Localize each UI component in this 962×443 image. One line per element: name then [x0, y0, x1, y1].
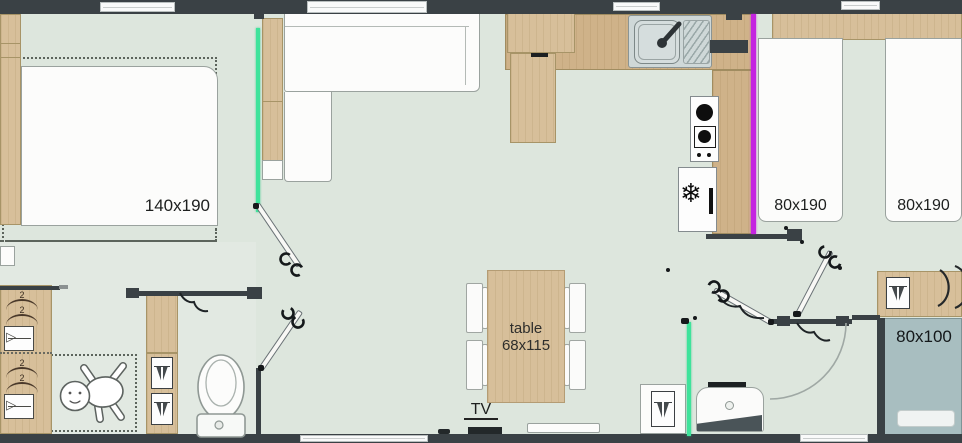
window — [100, 2, 175, 12]
bathroom-divider-dotted — [0, 240, 215, 242]
shower-west-wall — [877, 318, 885, 435]
shower-tray — [897, 410, 955, 427]
hanger-qty: 2 — [6, 291, 38, 299]
sliding-door-green-1 — [256, 28, 260, 212]
single-bed-2 — [885, 38, 962, 222]
burner-large — [696, 104, 713, 121]
towel-icon — [886, 277, 910, 309]
washbasin — [696, 387, 764, 432]
sofa — [284, 10, 480, 92]
stove-knob-2 — [707, 153, 711, 157]
bathroom-east-wall — [256, 368, 261, 434]
nightstand — [0, 246, 15, 266]
hanger-icon: 2 — [6, 306, 38, 325]
tv-label: TV — [464, 401, 498, 420]
kitchen-sink — [628, 15, 712, 68]
wardrobe-shelf-dotted — [0, 352, 52, 354]
cabinet-handle — [531, 53, 548, 57]
snowflake-icon: ❄ — [680, 180, 702, 206]
folded-linen-icon: ▷ — [4, 394, 34, 419]
living-wardrobe-column — [262, 18, 283, 162]
door-latch — [681, 318, 689, 324]
door-hinge — [253, 203, 259, 209]
fridge-handle — [709, 188, 713, 214]
door-swing-arc — [770, 323, 846, 399]
floorplan: 140x190 ❄ table — [0, 0, 962, 443]
dining-table: table 68x115 — [487, 270, 565, 403]
wardrobe-top-edge — [0, 286, 60, 290]
stove — [690, 96, 719, 162]
door-leaf — [259, 310, 303, 371]
stove-knob-1 — [697, 153, 701, 157]
hanger-qty: 2 — [6, 359, 38, 367]
window-sill-bench — [527, 423, 600, 433]
washbasin-counter — [697, 415, 762, 431]
bathroom-north-wall — [128, 291, 258, 296]
table-size-label: 68x115 — [502, 337, 550, 354]
door-jamb — [836, 316, 849, 326]
chair — [466, 283, 483, 333]
threshold-mark — [797, 323, 830, 341]
wall-dot — [838, 266, 842, 270]
sofa-chaise — [284, 92, 332, 182]
tv-unit — [468, 427, 502, 434]
door-jamb — [777, 316, 790, 326]
hanger-icon: 2 — [6, 374, 38, 393]
door-hinge — [793, 311, 801, 317]
jamb-bolt — [800, 240, 804, 244]
table-label: table — [510, 320, 543, 337]
chair — [466, 340, 483, 390]
door-leaf — [713, 287, 774, 325]
door-hinge — [258, 365, 264, 371]
bathroom-divider-dotted-v — [215, 229, 217, 241]
towel-icon — [151, 393, 173, 425]
kitchen-cabinet-lower — [510, 53, 556, 143]
chair — [569, 340, 586, 390]
window — [307, 1, 427, 13]
bedroom-hall-wall-step — [852, 315, 880, 320]
hanger-qty: 2 — [6, 374, 38, 382]
window — [800, 434, 868, 442]
bathroom-tall-cabinet — [146, 293, 178, 353]
chair — [569, 283, 586, 333]
window — [613, 2, 660, 11]
door-leaf — [255, 202, 302, 267]
single-bed-1 — [758, 38, 843, 222]
wall-nub — [254, 13, 264, 19]
door-jamb — [247, 287, 262, 299]
wardrobe-handle — [59, 285, 68, 289]
wall-dot — [666, 268, 670, 272]
towel-icon — [151, 357, 173, 389]
wall-nub — [726, 13, 742, 20]
washbasin-drain — [725, 401, 734, 410]
single-bed-1-size-label: 80x190 — [758, 197, 843, 215]
fridge: ❄ — [678, 167, 717, 232]
shower-size-label: 80x100 — [888, 327, 960, 347]
sink-drainer — [683, 20, 710, 64]
window — [300, 435, 428, 442]
door-jamb — [126, 288, 139, 298]
door-latch — [693, 316, 697, 320]
burner-small — [698, 130, 711, 143]
door-jamb — [787, 229, 802, 241]
right-headboard-shelf — [772, 10, 962, 40]
sliding-door-green-2 — [687, 322, 691, 436]
hanger-qty: 2 — [6, 306, 38, 314]
single-bed-2-size-label: 80x190 — [885, 197, 962, 215]
door-hinge — [768, 319, 774, 325]
master-bed-size-label: 140x190 — [105, 196, 210, 216]
window — [841, 1, 880, 10]
towel-icon — [651, 391, 675, 427]
kitchen-hall-wall — [706, 234, 798, 239]
folded-linen-icon: ▷ — [4, 326, 34, 351]
sliding-door-magenta — [751, 14, 756, 234]
wall-above-counter — [710, 40, 748, 53]
master-headboard — [0, 14, 21, 225]
door-leaf — [794, 250, 833, 317]
sink-bowl — [634, 20, 680, 64]
living-shelf — [262, 160, 283, 180]
jamb-bolt — [784, 226, 788, 230]
